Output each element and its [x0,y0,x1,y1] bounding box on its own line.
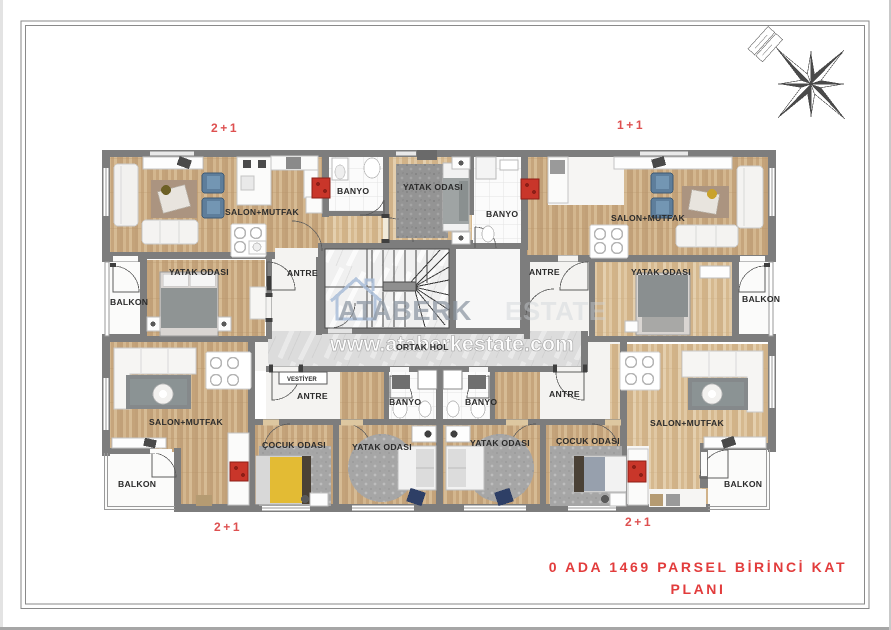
svg-text:ANTRE: ANTRE [529,267,560,277]
svg-text:BANYO: BANYO [337,186,369,196]
svg-text:SALON+MUTFAK: SALON+MUTFAK [611,213,685,223]
svg-text:www.ataberkestate.com: www.ataberkestate.com [329,332,574,356]
svg-text:ANTRE: ANTRE [297,391,328,401]
svg-text:YATAK ODASI: YATAK ODASI [631,267,691,277]
svg-text:ORTAK HOL: ORTAK HOL [396,342,449,352]
svg-text:BALKON: BALKON [118,479,156,489]
svg-text:YATAK ODASI: YATAK ODASI [403,182,463,192]
svg-text:ESTATE: ESTATE [505,296,607,326]
svg-text:SALON+MUTFAK: SALON+MUTFAK [149,417,223,427]
svg-text:YATAK ODASI: YATAK ODASI [470,438,530,448]
svg-text:BANYO: BANYO [389,397,421,407]
svg-text:1+1: 1+1 [617,118,645,132]
svg-text:ANTRE: ANTRE [549,389,580,399]
svg-text:2+1: 2+1 [211,121,239,135]
svg-text:BALKON: BALKON [110,297,148,307]
svg-text:2+1: 2+1 [625,515,653,529]
svg-text:YATAK ODASI: YATAK ODASI [352,442,412,452]
svg-text:ÇOCUK ODASI: ÇOCUK ODASI [556,436,620,446]
svg-text:YATAK ODASI: YATAK ODASI [169,267,229,277]
svg-text:0 ADA 1469 PARSEL BİRİNCİ KAT: 0 ADA 1469 PARSEL BİRİNCİ KAT [549,559,847,575]
svg-text:SALON+MUTFAK: SALON+MUTFAK [225,207,299,217]
svg-text:VESTİYER: VESTİYER [287,376,317,383]
svg-text:SALON+MUTFAK: SALON+MUTFAK [650,418,724,428]
svg-text:BANYO: BANYO [465,397,497,407]
svg-text:BALKON: BALKON [742,294,780,304]
svg-text:ANTRE: ANTRE [287,268,318,278]
svg-text:BANYO: BANYO [486,209,518,219]
svg-text:ATABERK: ATABERK [338,295,472,326]
svg-text:BALKON: BALKON [724,479,762,489]
svg-text:PLANI: PLANI [671,581,726,597]
svg-text:2+1: 2+1 [214,520,242,534]
svg-text:ÇOCUK ODASI: ÇOCUK ODASI [262,440,326,450]
